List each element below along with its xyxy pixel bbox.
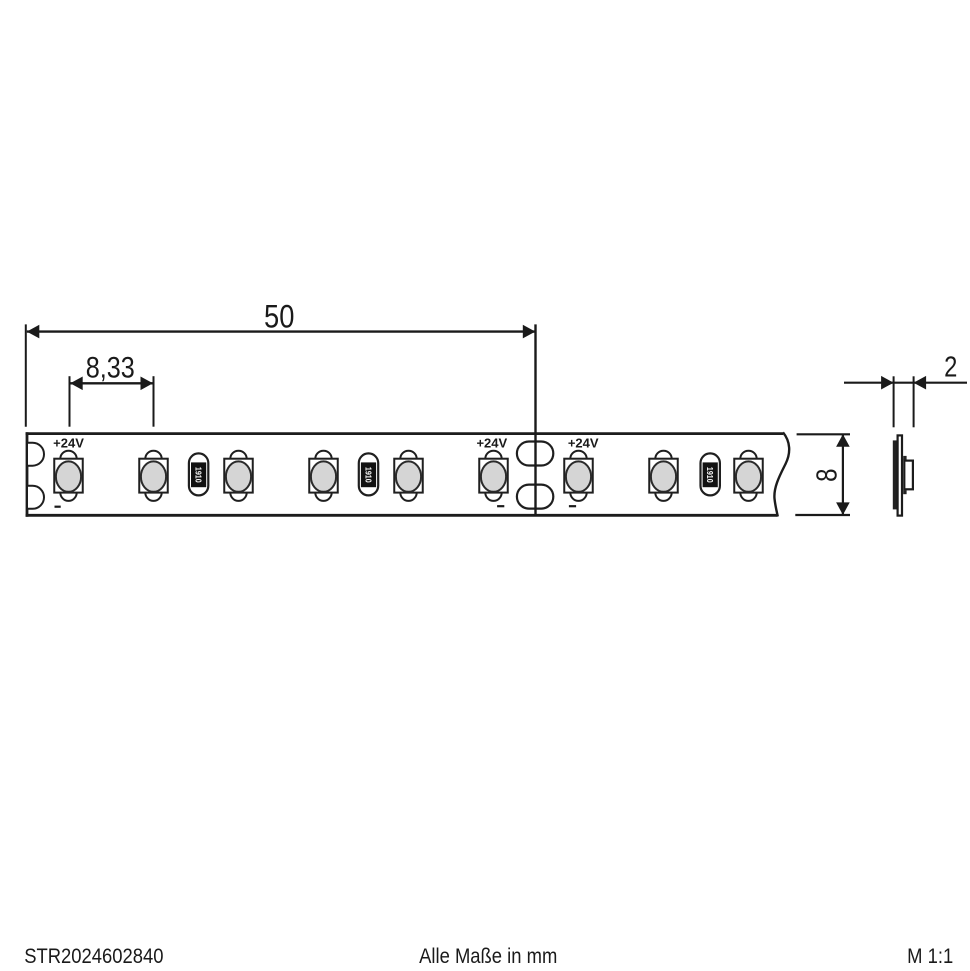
svg-text:2: 2 [944, 350, 957, 383]
svg-text:8,33: 8,33 [86, 350, 135, 384]
svg-text:M 1:1: M 1:1 [907, 945, 953, 969]
svg-text:8: 8 [810, 469, 843, 482]
svg-text:+24V: +24V [53, 436, 84, 451]
svg-text:+24V: +24V [476, 436, 507, 451]
svg-text:STR2024602840: STR2024602840 [24, 945, 163, 969]
svg-text:+24V: +24V [568, 436, 599, 451]
svg-text:50: 50 [264, 299, 294, 335]
svg-text:Alle Maße in mm: Alle Maße in mm [419, 945, 557, 969]
